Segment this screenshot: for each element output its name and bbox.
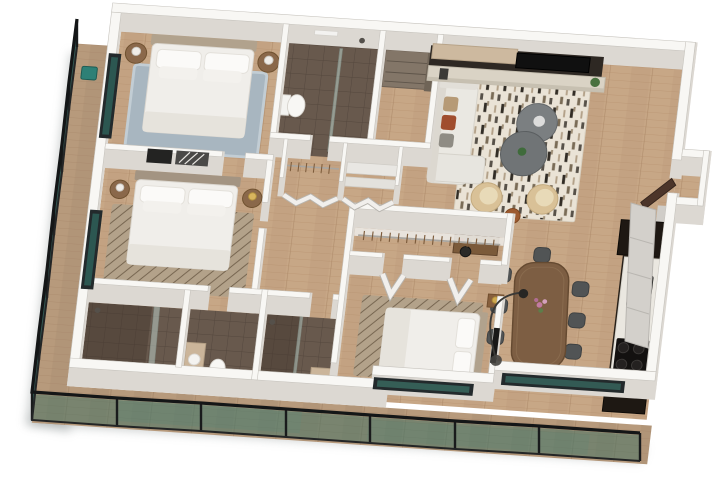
projected-plan [32, 1, 720, 466]
dining-chair-right-3 [564, 344, 582, 360]
sofa-pillow-gray [438, 133, 454, 148]
floorplan-render [0, 0, 720, 481]
dining-table [511, 263, 570, 370]
dining-chair-head [533, 247, 551, 263]
media-picture-frame [439, 68, 449, 80]
bed2-art-dark [146, 149, 173, 164]
floorplan-stage [0, 0, 720, 481]
dining-chair-right-2 [568, 313, 586, 329]
bed2-lamp-left [116, 184, 125, 192]
sofa-pillow-rust [440, 115, 456, 131]
bed1-lamp-left [131, 47, 141, 56]
sofa-pillow-tan [443, 96, 459, 112]
dining-chair-right-1 [572, 281, 590, 297]
bed2-lamp-right [248, 193, 257, 201]
balcony-planter [81, 66, 98, 80]
bed3-pillow-top [455, 318, 476, 349]
bed1-lamp-right [264, 56, 274, 65]
